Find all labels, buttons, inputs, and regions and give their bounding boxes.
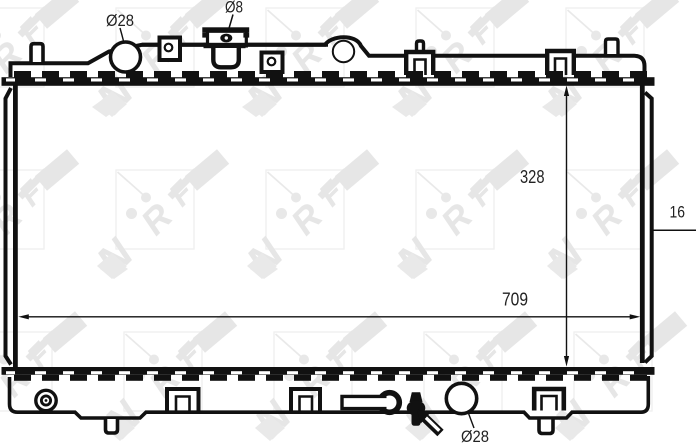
svg-text:16: 16 [670, 203, 686, 222]
svg-text:328: 328 [520, 167, 545, 187]
svg-text:709: 709 [502, 290, 528, 310]
svg-text:Ø28: Ø28 [106, 12, 134, 30]
svg-text:Ø8: Ø8 [225, 0, 243, 17]
svg-text:Ø28: Ø28 [461, 428, 489, 445]
